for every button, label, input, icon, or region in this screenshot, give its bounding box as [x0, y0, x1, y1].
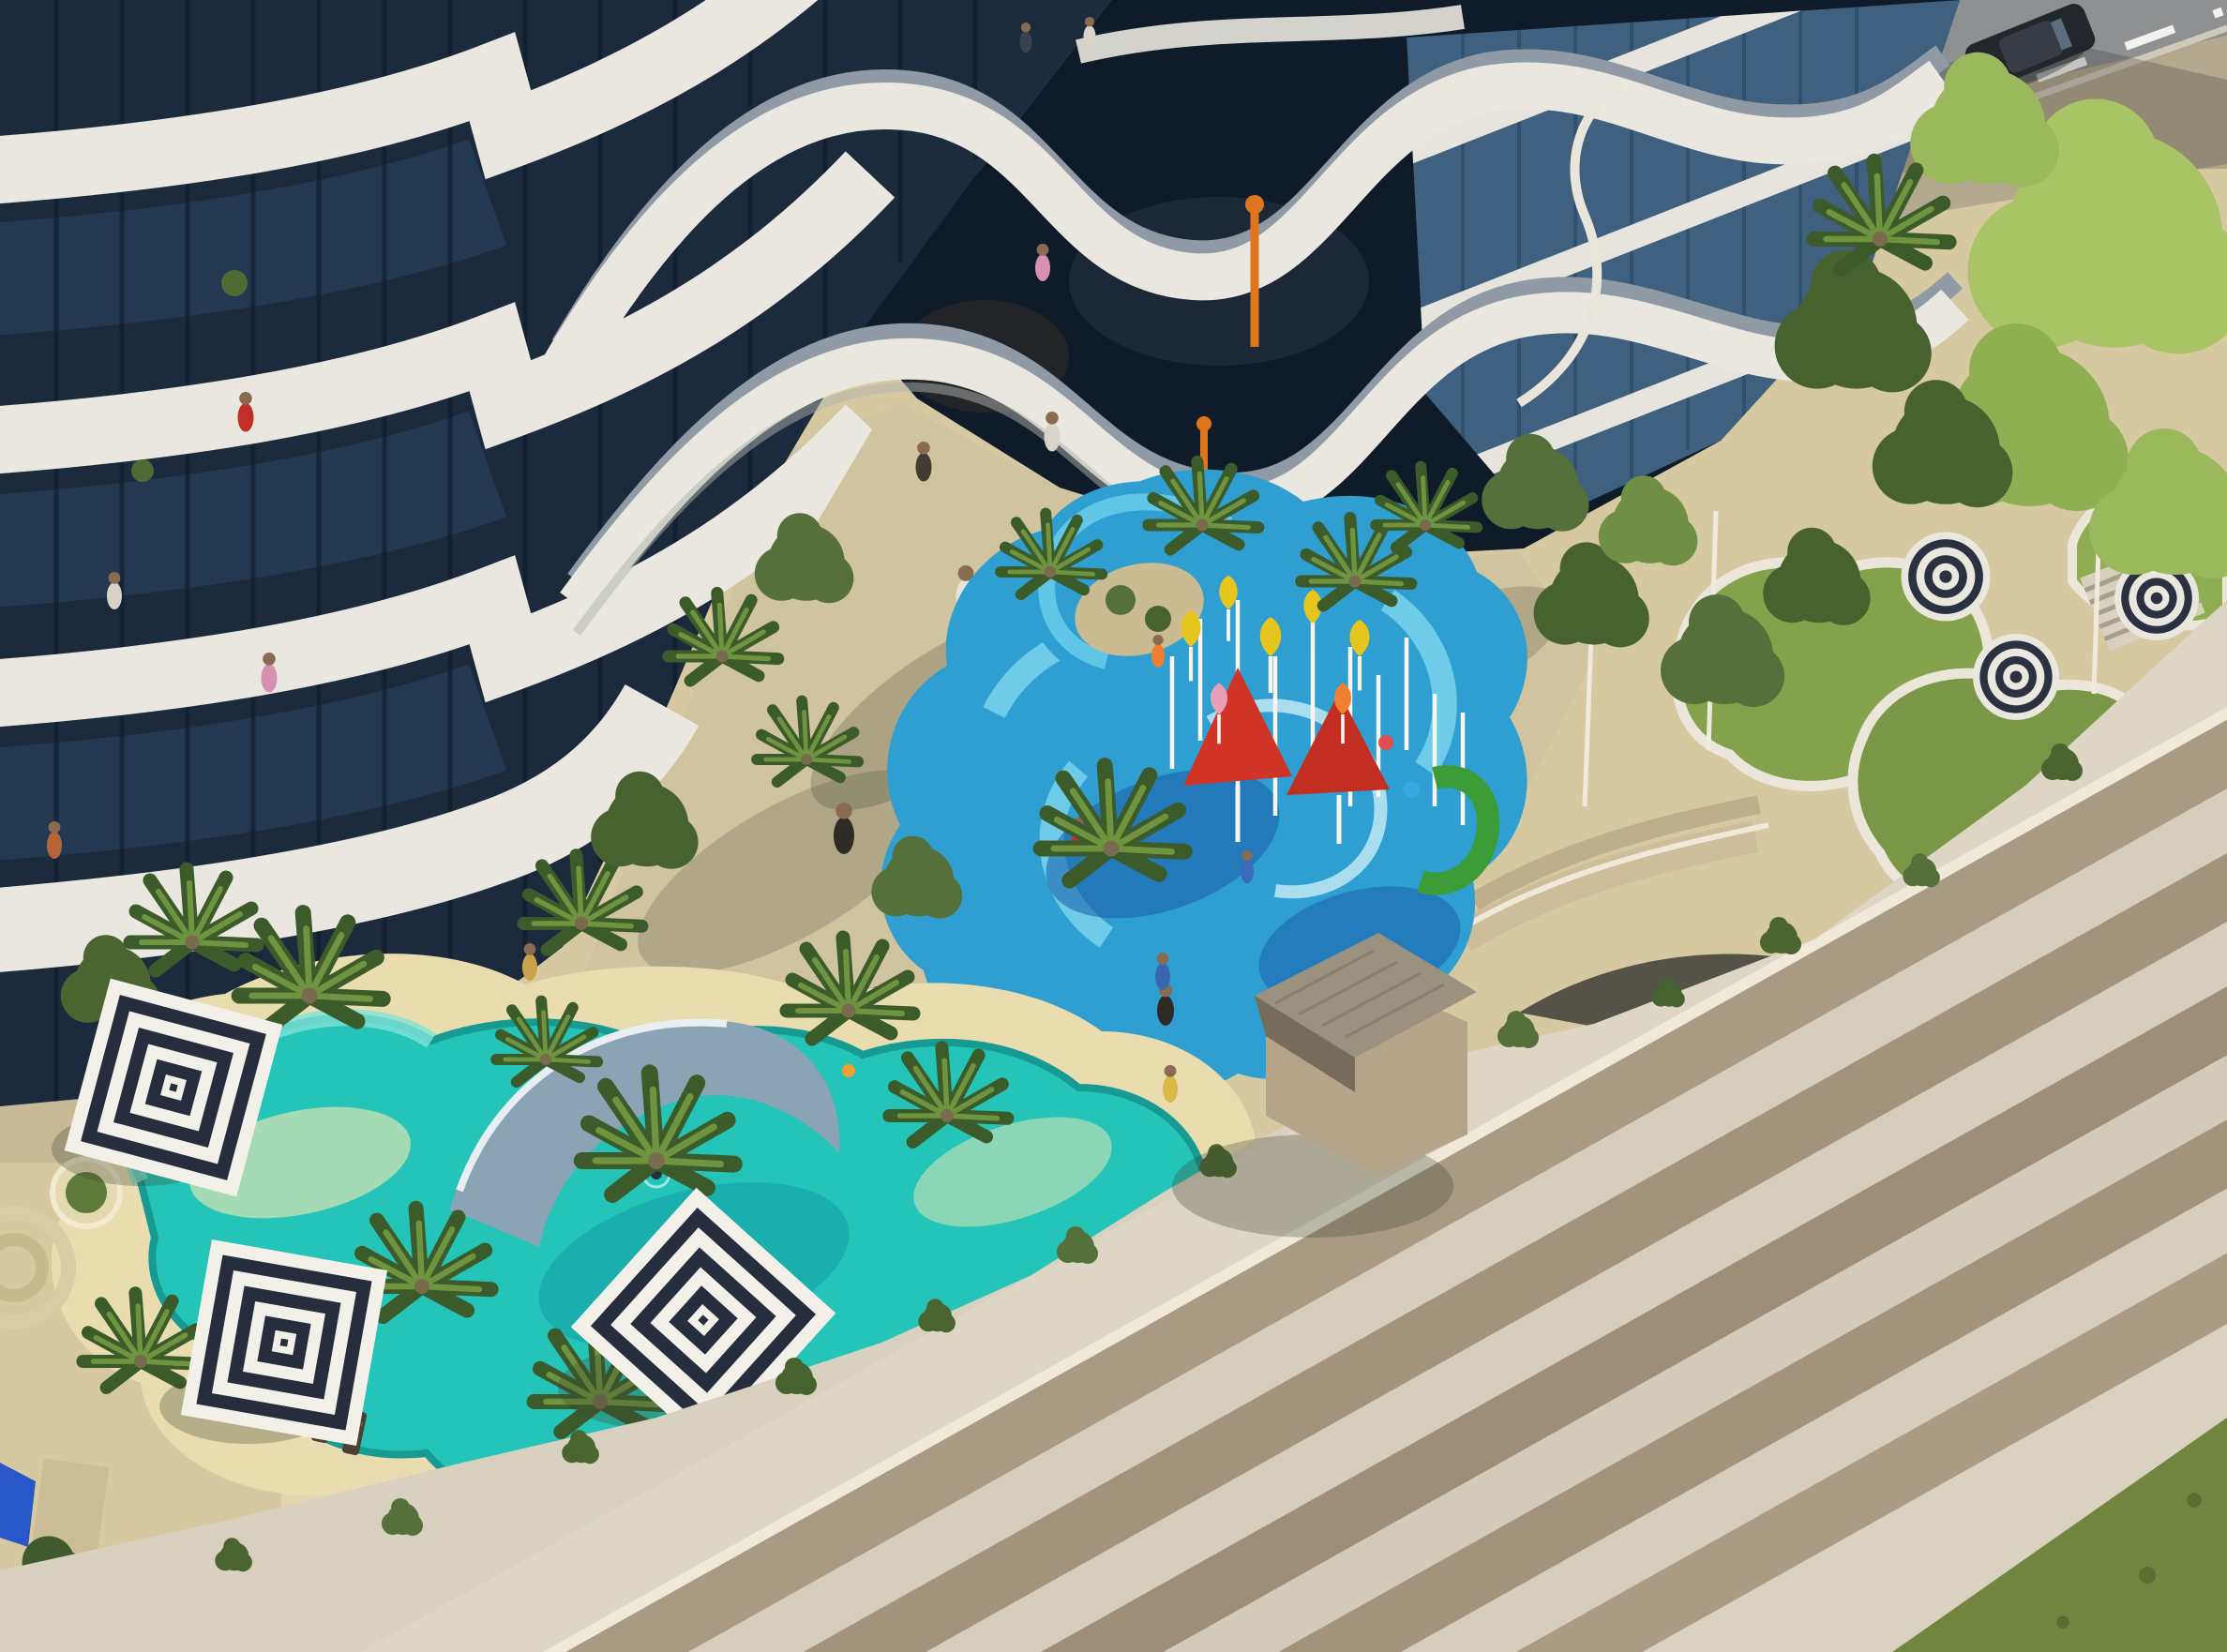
balcony-person — [238, 392, 254, 432]
pedestrian — [1155, 953, 1170, 990]
play-ball — [1378, 735, 1393, 750]
balcony-person — [1035, 244, 1050, 281]
render-canvas — [0, 0, 2227, 1652]
pedestrian — [1045, 412, 1061, 452]
square-striped-umbrella — [181, 1239, 387, 1446]
flamingo-sculpture-head — [1245, 195, 1264, 214]
balcony-person — [107, 572, 122, 609]
island-bush — [1106, 585, 1136, 615]
balcony-plant — [221, 270, 248, 296]
pedestrian — [834, 803, 854, 854]
child-playing — [1151, 635, 1165, 668]
round-striped-umbrella — [1973, 634, 2059, 720]
balcony-plant — [131, 459, 154, 482]
play-ball — [1403, 781, 1420, 798]
pedestrian — [916, 442, 932, 482]
grass-texture — [2187, 1493, 2202, 1508]
pedestrian — [522, 943, 537, 981]
pedestrian — [1163, 1065, 1178, 1103]
balcony-person — [1084, 17, 1096, 48]
pedestrian — [1157, 984, 1174, 1026]
grass-texture — [2139, 1567, 2156, 1584]
balcony-person — [262, 653, 278, 693]
balcony-person — [1020, 23, 1032, 53]
balcony-person — [47, 821, 62, 859]
aerial-resort-rendering — [0, 0, 2227, 1652]
swimmer — [842, 1064, 855, 1077]
round-striped-umbrella — [1902, 533, 1991, 622]
flamingo-sculpture-head — [1196, 416, 1211, 431]
child-playing — [1241, 850, 1254, 883]
grass-texture — [2056, 1615, 2069, 1629]
island-bush — [1145, 606, 1171, 632]
